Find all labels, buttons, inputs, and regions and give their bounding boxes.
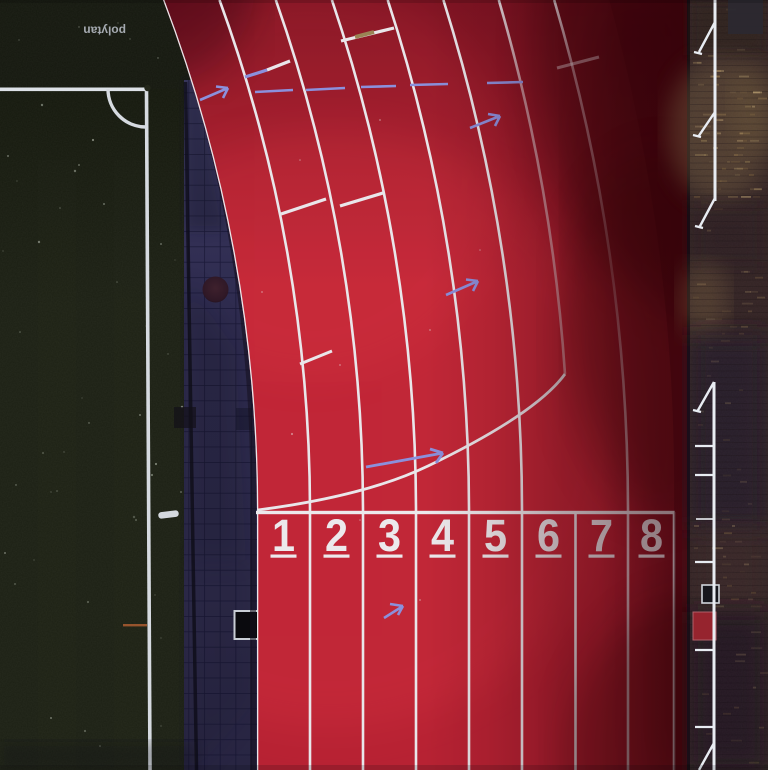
svg-text:polytan: polytan <box>83 24 126 38</box>
